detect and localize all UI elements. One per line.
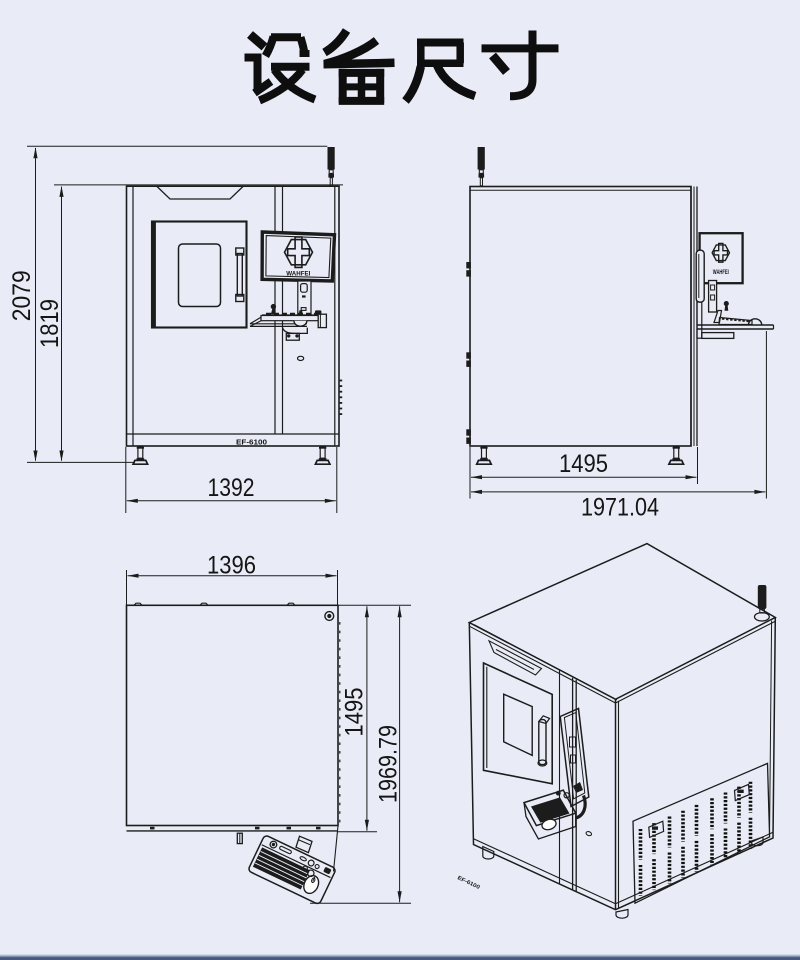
svg-text:1392: 1392 [208,474,255,502]
svg-text:EF-6100: EF-6100 [236,437,267,446]
svg-text:1971.04: 1971.04 [581,494,659,522]
svg-text:1495: 1495 [341,688,369,737]
svg-text:WAHFEI: WAHFEI [286,270,310,277]
svg-text:1495: 1495 [559,450,608,478]
svg-text:1396: 1396 [207,551,256,579]
svg-text:1969.79: 1969.79 [375,725,403,803]
svg-text:WAHFEI: WAHFEI [713,270,729,276]
svg-text:1819: 1819 [36,299,64,348]
svg-text:2079: 2079 [8,270,36,321]
